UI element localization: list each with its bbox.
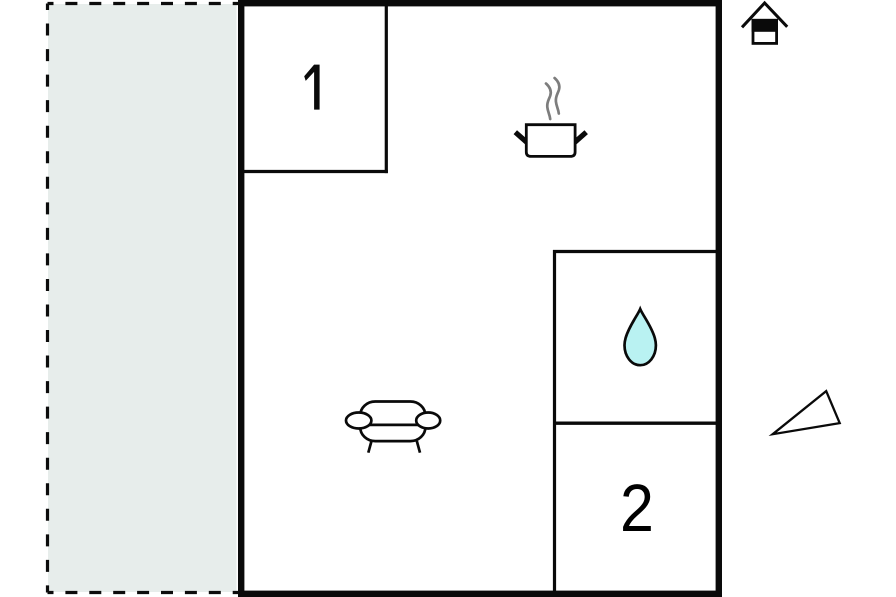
svg-text:2: 2 xyxy=(620,470,654,545)
